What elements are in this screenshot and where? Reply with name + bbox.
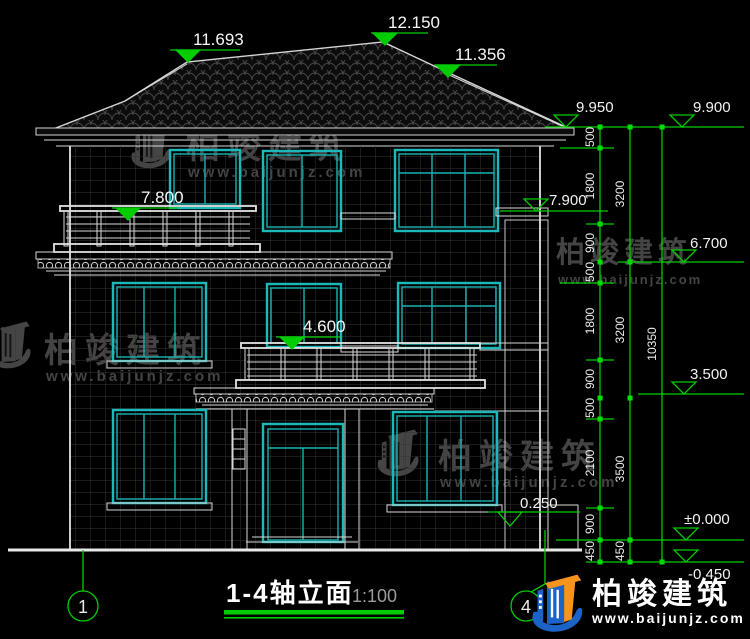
dim-label: 1800 — [583, 307, 597, 334]
dim-label: 900 — [583, 233, 597, 253]
svg-text:0.250: 0.250 — [520, 495, 558, 512]
building — [8, 146, 582, 550]
brand-name: 柏竣建筑 — [592, 577, 732, 611]
footer-brand: 柏竣建筑 www.baijunjz.com — [532, 575, 744, 632]
svg-text:4.600: 4.600 — [303, 317, 346, 336]
dim-label: 500 — [583, 127, 597, 147]
brand-logo-icon — [532, 575, 582, 632]
drawing-title: 1-4轴立面 — [226, 578, 354, 608]
axis-number-left: 1 — [78, 597, 88, 617]
title-underline-thin — [224, 617, 404, 619]
dim-label: 2100 — [583, 449, 597, 476]
marker-ground: ±0.000 — [638, 511, 744, 540]
dim-label: 900 — [583, 514, 597, 534]
svg-text:9.900: 9.900 — [693, 99, 731, 116]
eave-fascia — [36, 128, 574, 135]
watermark-logo-icon — [0, 321, 31, 368]
marker-eave-right: 9.950 — [554, 99, 614, 127]
svg-text:±0.000: ±0.000 — [684, 511, 730, 528]
dim-label: 500 — [583, 398, 597, 418]
dim-label: 3200 — [613, 316, 627, 343]
dim-label: 3500 — [613, 455, 627, 482]
marker-porch-roof: 3.500 — [638, 366, 744, 394]
brand-url: www.baijunjz.com — [591, 610, 745, 626]
svg-text:7.900: 7.900 — [549, 192, 587, 209]
axis-number-right: 4 — [521, 597, 531, 617]
marker-ridge-right: 11.356 — [434, 45, 506, 77]
title-block: 1-4轴立面 1:100 — [224, 578, 404, 619]
title-underline-thick — [224, 610, 404, 615]
dim-label: 900 — [583, 369, 597, 389]
dim-label: 450 — [613, 541, 627, 561]
svg-text:11.356: 11.356 — [455, 45, 506, 64]
svg-text:11.693: 11.693 — [193, 30, 244, 49]
dim-label: 500 — [583, 262, 597, 282]
svg-text:9.950: 9.950 — [576, 99, 614, 116]
dim-label: 10350 — [645, 327, 659, 361]
dim-label: 450 — [583, 541, 597, 561]
watermark-brand: 柏竣建筑 — [556, 235, 692, 269]
dim-label: 3200 — [613, 180, 627, 207]
svg-text:6.700: 6.700 — [690, 235, 728, 252]
elevation-drawing-canvas: 柏竣建筑 www.baijunjz.com 柏竣建筑 www.baijunjz.… — [0, 0, 750, 639]
svg-text:7.800: 7.800 — [141, 188, 184, 207]
marker-ridge-peak: 12.150 — [371, 13, 440, 45]
marker-parapet-right: 9.900 — [670, 99, 731, 127]
svg-text:12.150: 12.150 — [388, 13, 440, 32]
svg-text:3.500: 3.500 — [690, 366, 728, 383]
drawing-scale: 1:100 — [352, 586, 397, 606]
